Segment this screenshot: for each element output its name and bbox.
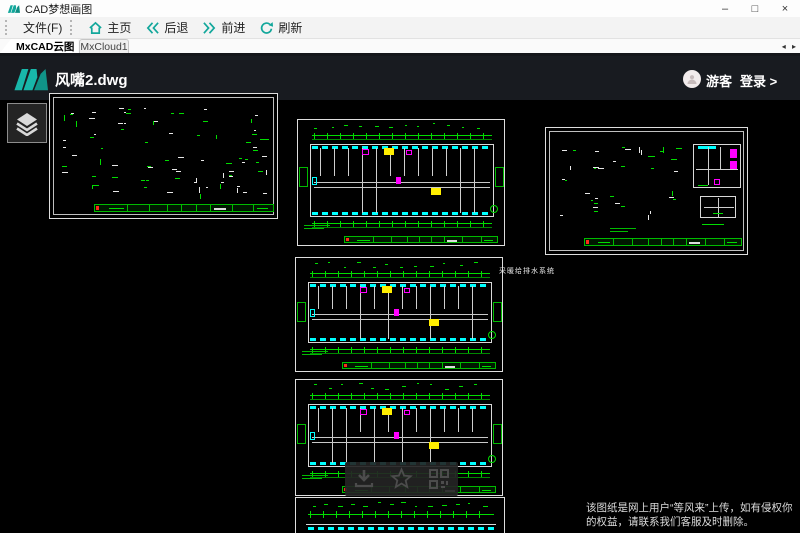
cad-mark bbox=[447, 240, 458, 242]
cad-mark bbox=[404, 410, 410, 415]
cad-mark bbox=[167, 192, 172, 193]
cad-mark bbox=[390, 393, 391, 399]
action-overlay bbox=[345, 462, 458, 496]
cad-mark bbox=[378, 502, 381, 503]
cad-mark bbox=[310, 309, 315, 317]
drawing-riser-detail[interactable] bbox=[545, 127, 748, 255]
cad-mark bbox=[428, 506, 433, 507]
cad-mark bbox=[468, 271, 469, 277]
cad-mark bbox=[594, 211, 599, 212]
tab-scroll-arrows[interactable]: ◂ ▸ bbox=[782, 42, 798, 51]
cad-mark bbox=[254, 130, 256, 131]
cad-mark bbox=[673, 199, 676, 200]
cad-mark bbox=[374, 286, 375, 309]
cad-mark bbox=[229, 175, 232, 176]
cad-mark bbox=[266, 170, 267, 176]
cad-mark bbox=[673, 239, 674, 245]
cad-mark bbox=[359, 383, 363, 384]
cad-mark bbox=[442, 271, 443, 277]
layers-button[interactable] bbox=[7, 103, 47, 143]
drawing-note-label: 采暖给排水系统 bbox=[499, 266, 555, 276]
cad-mark bbox=[455, 271, 456, 277]
cad-mark bbox=[401, 502, 406, 503]
minimize-button[interactable]: – bbox=[710, 0, 740, 17]
cad-mark bbox=[96, 206, 99, 210]
cad-mark bbox=[251, 119, 252, 123]
cad-mark bbox=[253, 147, 256, 148]
cad-mark bbox=[325, 393, 326, 399]
cad-mark bbox=[651, 168, 654, 169]
cad-mark bbox=[418, 133, 419, 139]
double-chevron-left-icon bbox=[145, 21, 160, 35]
cad-mark bbox=[310, 338, 490, 341]
cad-mark bbox=[686, 239, 687, 245]
cad-mark bbox=[312, 135, 492, 136]
forward-label: 前进 bbox=[221, 19, 245, 36]
forward-button[interactable]: 前进 bbox=[195, 17, 252, 38]
cad-mark bbox=[126, 113, 131, 114]
cad-mark bbox=[72, 155, 77, 156]
cad-mark bbox=[676, 148, 682, 149]
cad-mark bbox=[359, 126, 362, 127]
cad-mark bbox=[693, 144, 741, 188]
cad-mark bbox=[320, 148, 321, 176]
cad-mark bbox=[402, 408, 403, 463]
cad-mark bbox=[401, 511, 402, 518]
cad-mark bbox=[584, 238, 742, 246]
cad-mark bbox=[384, 148, 394, 155]
cad-mark bbox=[71, 113, 74, 114]
back-button[interactable]: 后退 bbox=[138, 17, 195, 38]
cad-mark bbox=[462, 237, 463, 242]
cad-mark bbox=[336, 511, 337, 518]
cad-mark bbox=[118, 123, 123, 124]
cad-mark bbox=[357, 240, 369, 241]
cad-mark bbox=[145, 142, 148, 143]
cad-mark bbox=[89, 118, 95, 119]
cad-mark bbox=[594, 203, 597, 204]
cad-mark bbox=[314, 182, 490, 183]
cad-mark bbox=[314, 133, 315, 139]
cad-mark bbox=[62, 172, 68, 173]
cad-mark bbox=[237, 188, 238, 193]
cad-mark bbox=[460, 148, 461, 213]
cad-mark bbox=[308, 527, 494, 530]
cad-mark bbox=[329, 388, 332, 389]
cad-mark bbox=[299, 167, 308, 187]
cad-mark bbox=[391, 237, 392, 242]
app-window: CAD梦想画图 – □ × 文件(F) 主页 后退 前进 bbox=[0, 0, 800, 533]
cad-mark bbox=[362, 149, 369, 155]
cad-mark bbox=[442, 363, 443, 368]
cad-mark bbox=[121, 129, 124, 130]
cad-mark bbox=[327, 133, 328, 139]
cad-mark bbox=[394, 309, 399, 316]
cad-mark bbox=[302, 475, 328, 476]
main-toolbar: 文件(F) 主页 后退 前进 刷新 bbox=[0, 17, 800, 39]
home-button[interactable]: 主页 bbox=[81, 17, 138, 38]
cad-mark bbox=[613, 239, 614, 245]
cad-mark bbox=[705, 239, 706, 245]
cad-mark bbox=[196, 205, 197, 211]
cad-mark bbox=[362, 148, 363, 213]
download-icon[interactable] bbox=[352, 467, 376, 491]
cad-mark bbox=[648, 215, 649, 220]
cad-mark bbox=[318, 286, 319, 309]
cad-mark bbox=[119, 108, 124, 109]
cad-mark bbox=[315, 263, 318, 264]
cad-mark bbox=[385, 264, 388, 265]
cad-mark bbox=[63, 147, 66, 148]
cad-mark bbox=[417, 363, 418, 368]
cad-mark bbox=[444, 237, 445, 242]
cad-mark bbox=[310, 144, 494, 217]
cad-mark bbox=[360, 409, 367, 415]
cad-mark bbox=[197, 135, 199, 136]
cad-mark bbox=[429, 393, 430, 399]
cad-mark bbox=[484, 240, 493, 241]
cad-mark bbox=[379, 133, 380, 139]
cad-mark bbox=[124, 123, 126, 124]
cad-mark bbox=[310, 432, 315, 440]
cad-mark bbox=[460, 363, 461, 368]
cad-mark bbox=[246, 142, 251, 143]
cad-mark bbox=[375, 126, 379, 127]
cad-mark bbox=[429, 319, 439, 326]
cad-mark bbox=[403, 271, 404, 277]
cad-mark bbox=[610, 228, 636, 229]
cad-mark bbox=[171, 113, 174, 114]
cad-mark bbox=[312, 314, 488, 315]
cad-mark bbox=[302, 354, 322, 355]
refresh-label: 刷新 bbox=[278, 19, 302, 36]
cad-mark bbox=[346, 408, 347, 463]
cad-mark bbox=[585, 193, 590, 194]
cad-mark bbox=[406, 150, 412, 155]
cad-mark bbox=[373, 237, 374, 242]
cad-mark bbox=[724, 239, 725, 245]
cad-mark bbox=[310, 349, 490, 350]
cad-mark bbox=[144, 108, 147, 109]
cad-mark bbox=[371, 363, 372, 368]
cad-mark bbox=[474, 148, 475, 213]
cad-mark bbox=[431, 188, 441, 195]
cad-mark bbox=[242, 162, 245, 163]
cad-mark bbox=[232, 205, 233, 211]
cad-mark bbox=[214, 208, 227, 210]
cad-mark bbox=[477, 128, 480, 129]
cad-mark bbox=[340, 133, 341, 139]
cad-mark bbox=[700, 196, 736, 218]
cad-mark bbox=[625, 149, 631, 150]
cad-mark bbox=[362, 511, 363, 518]
cad-mark bbox=[181, 205, 182, 211]
cad-mark bbox=[632, 239, 633, 245]
cad-mark bbox=[648, 239, 649, 245]
refresh-button[interactable]: 刷新 bbox=[252, 17, 309, 38]
cad-mark bbox=[199, 187, 200, 193]
tab-bar: MxCAD云图 MxCloud1 ◂ ▸ bbox=[0, 39, 800, 53]
cad-mark bbox=[304, 228, 324, 229]
cad-mark bbox=[324, 504, 328, 505]
cad-mark bbox=[400, 267, 403, 268]
cad-mark bbox=[598, 168, 604, 169]
cad-mark bbox=[468, 393, 469, 399]
cad-mark bbox=[310, 273, 490, 274]
cad-mark bbox=[252, 134, 257, 135]
cad-mark bbox=[194, 182, 197, 183]
cad-mark bbox=[310, 395, 490, 396]
cad-mark bbox=[621, 166, 625, 167]
viewer-content: 风嘴2.dwg 游客 登录 > 采暖给排水系统 bbox=[0, 56, 800, 533]
cad-mark bbox=[444, 286, 445, 309]
cad-mark bbox=[258, 171, 264, 172]
cad-mark bbox=[264, 139, 269, 140]
cad-mark bbox=[481, 393, 482, 399]
cad-mark bbox=[396, 177, 401, 184]
title-bar: CAD梦想画图 – □ × bbox=[0, 0, 800, 17]
cad-mark bbox=[113, 191, 118, 192]
cad-mark bbox=[200, 194, 201, 200]
cad-mark bbox=[148, 167, 154, 168]
cad-mark bbox=[698, 146, 716, 149]
cad-mark bbox=[243, 192, 247, 193]
user-avatar-icon[interactable] bbox=[683, 70, 701, 88]
cad-mark bbox=[363, 506, 368, 507]
cad-mark bbox=[310, 353, 490, 354]
cad-mark bbox=[415, 506, 417, 507]
cad-mark bbox=[373, 267, 376, 268]
file-menu-label: 文件(F) bbox=[23, 19, 62, 36]
cad-mark bbox=[493, 424, 502, 444]
copyright-watermark: 该图纸是网上用户“等风来”上传，如有侵权你 的权益，请联系我们客服及时删除。 bbox=[586, 501, 796, 529]
cad-mark bbox=[204, 109, 207, 110]
cad-mark bbox=[153, 121, 154, 125]
star-icon[interactable] bbox=[389, 467, 414, 491]
cad-mark bbox=[481, 271, 482, 277]
cad-mark bbox=[353, 133, 354, 139]
cad-mark bbox=[344, 125, 348, 126]
cad-mark bbox=[323, 511, 324, 518]
cad-mark bbox=[310, 511, 311, 518]
cad-mark bbox=[457, 133, 458, 139]
login-link[interactable]: 登录 > bbox=[740, 71, 777, 90]
cad-mark bbox=[63, 140, 67, 141]
cad-mark bbox=[405, 363, 406, 368]
cad-mark bbox=[455, 393, 456, 399]
cad-mark bbox=[377, 393, 378, 399]
cad-mark bbox=[308, 282, 492, 343]
cad-mark bbox=[720, 147, 721, 169]
cad-mark bbox=[312, 442, 488, 443]
cad-mark bbox=[593, 207, 598, 208]
cad-mark bbox=[310, 284, 490, 287]
tab-mxcad-cloud[interactable]: MxCAD云图 bbox=[0, 39, 78, 53]
maximize-button[interactable]: □ bbox=[740, 0, 770, 17]
cad-mark bbox=[472, 286, 473, 339]
toolbar-grip bbox=[5, 20, 11, 35]
cad-mark bbox=[169, 133, 173, 134]
cad-mark bbox=[433, 123, 435, 124]
cad-mark bbox=[312, 227, 492, 228]
cad-mark bbox=[440, 511, 441, 518]
cad-mark bbox=[562, 179, 565, 180]
cad-mark bbox=[172, 169, 177, 170]
cad-mark bbox=[255, 115, 258, 116]
cad-mark bbox=[210, 205, 211, 211]
cad-mark bbox=[672, 191, 673, 196]
cad-mark bbox=[698, 185, 708, 186]
cad-mark bbox=[443, 263, 445, 264]
cad-mark bbox=[404, 288, 410, 293]
home-label: 主页 bbox=[107, 19, 131, 36]
guest-label[interactable]: 游客 bbox=[706, 71, 732, 90]
cad-mark bbox=[94, 204, 274, 212]
cad-mark bbox=[314, 187, 490, 188]
cad-mark bbox=[713, 213, 723, 214]
cad-mark bbox=[312, 177, 317, 185]
cad-mark bbox=[175, 178, 180, 179]
cad-mark bbox=[364, 393, 365, 399]
cad-mark bbox=[468, 503, 470, 504]
cad-mark bbox=[341, 384, 343, 385]
cad-mark bbox=[621, 206, 625, 207]
back-label: 后退 bbox=[164, 19, 188, 36]
cad-mark bbox=[470, 133, 471, 139]
cad-mark bbox=[570, 166, 571, 170]
cad-mark bbox=[430, 384, 433, 385]
cad-mark bbox=[313, 506, 316, 507]
drawing-floorplan-4-partial[interactable] bbox=[295, 497, 505, 533]
cad-mark bbox=[128, 109, 132, 110]
watermark-line2: 的权益，请联系我们客服及时删除。 bbox=[586, 515, 796, 529]
cad-mark bbox=[669, 197, 674, 198]
cad-mark bbox=[472, 408, 473, 432]
cad-mark bbox=[417, 126, 419, 127]
cad-mark bbox=[479, 511, 480, 518]
cad-mark bbox=[310, 406, 490, 409]
cad-mark bbox=[149, 205, 150, 211]
cad-mark bbox=[442, 393, 443, 399]
window-title: CAD梦想画图 bbox=[25, 1, 92, 17]
cad-mark bbox=[390, 504, 395, 505]
cad-mark bbox=[405, 125, 407, 126]
cad-mark bbox=[221, 182, 224, 183]
qrcode-icon[interactable] bbox=[427, 467, 451, 491]
cad-mark bbox=[419, 237, 420, 242]
cad-mark bbox=[458, 286, 459, 309]
cad-mark bbox=[432, 148, 433, 176]
cad-mark bbox=[689, 242, 700, 244]
cad-mark bbox=[445, 366, 456, 368]
cad-mark bbox=[312, 393, 313, 399]
layers-icon bbox=[14, 110, 40, 136]
cad-mark bbox=[458, 408, 459, 432]
cad-mark bbox=[346, 286, 347, 309]
cad-mark bbox=[112, 165, 117, 166]
drawing-floorplan-1[interactable] bbox=[297, 119, 505, 246]
cad-mark bbox=[649, 156, 655, 157]
cad-mark bbox=[229, 171, 234, 172]
cad-mark bbox=[263, 193, 267, 194]
cad-mark bbox=[405, 133, 406, 139]
home-icon bbox=[88, 21, 103, 35]
close-button[interactable]: × bbox=[770, 0, 800, 17]
cad-mark bbox=[402, 386, 406, 387]
cad-mark bbox=[389, 363, 390, 368]
cad-mark bbox=[167, 205, 168, 211]
cad-mark bbox=[376, 148, 377, 213]
cad-mark bbox=[355, 366, 367, 367]
cad-mark bbox=[245, 159, 248, 160]
cad-mark bbox=[445, 389, 449, 390]
cad-mark bbox=[176, 171, 181, 172]
file-menu[interactable]: 文件(F) bbox=[16, 17, 69, 38]
cad-mark bbox=[312, 437, 488, 438]
cad-mark bbox=[344, 236, 498, 243]
drawing-floorplan-2[interactable] bbox=[295, 257, 503, 372]
cad-mark bbox=[206, 187, 209, 188]
drawing-riser-diagram[interactable] bbox=[49, 93, 278, 219]
cad-mark bbox=[94, 134, 96, 135]
cad-mark bbox=[416, 286, 417, 309]
cad-mark bbox=[338, 393, 339, 399]
cad-mark bbox=[460, 487, 461, 492]
cad-mark bbox=[178, 157, 184, 158]
cad-mark bbox=[348, 148, 349, 176]
cad-mark bbox=[223, 173, 224, 178]
cad-mark bbox=[342, 362, 496, 369]
cad-mark bbox=[332, 127, 334, 128]
cad-mark bbox=[479, 487, 480, 492]
cad-mark bbox=[639, 147, 640, 153]
cad-mark bbox=[430, 266, 434, 267]
cad-mark bbox=[338, 506, 343, 507]
cad-mark bbox=[93, 185, 98, 186]
cad-mark bbox=[304, 225, 330, 226]
cad-mark bbox=[388, 286, 389, 339]
cad-mark bbox=[220, 184, 221, 189]
cad-mark bbox=[488, 455, 496, 463]
cad-mark bbox=[394, 432, 399, 439]
cad-mark bbox=[495, 167, 504, 187]
cad-mark bbox=[431, 133, 432, 139]
cad-mark bbox=[351, 504, 355, 505]
tab-mxcloud1[interactable]: MxCloud1 bbox=[79, 39, 129, 53]
cad-mark bbox=[101, 148, 103, 149]
cad-mark bbox=[375, 511, 376, 518]
cad-mark bbox=[253, 205, 254, 211]
cad-mark bbox=[179, 113, 185, 114]
cad-mark bbox=[416, 408, 417, 432]
cad-mark bbox=[312, 146, 492, 149]
cad-mark bbox=[338, 271, 339, 277]
cad-mark bbox=[328, 262, 330, 263]
cad-mark bbox=[165, 160, 169, 161]
cad-mark bbox=[483, 506, 488, 507]
cad-mark bbox=[109, 208, 123, 209]
cad-mark bbox=[442, 505, 447, 506]
cad-mark bbox=[377, 271, 378, 277]
cad-mark bbox=[318, 408, 319, 432]
cad-mark bbox=[344, 267, 346, 268]
cad-mark bbox=[613, 161, 616, 162]
cad-mark bbox=[641, 150, 642, 155]
cad-mark bbox=[237, 186, 240, 187]
cad-mark bbox=[674, 171, 678, 172]
cad-mark bbox=[306, 524, 496, 525]
cad-mark bbox=[385, 389, 389, 390]
